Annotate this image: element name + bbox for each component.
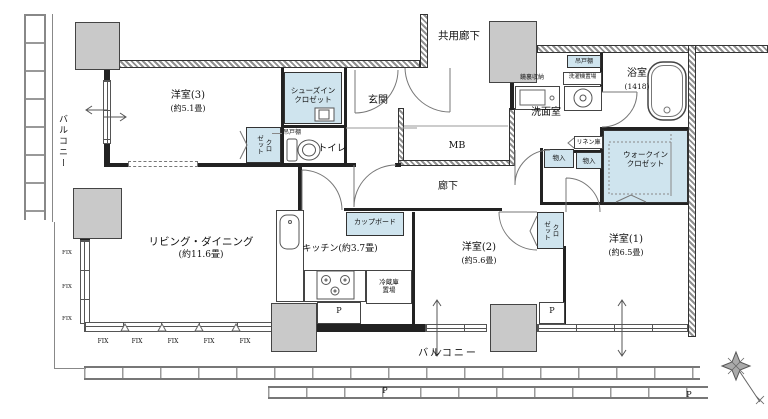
wall xyxy=(298,163,302,212)
wall xyxy=(510,83,514,110)
window-western3 xyxy=(103,80,111,144)
bath-size: (1418) xyxy=(620,82,654,92)
living-size: (約11.6畳) xyxy=(166,250,236,261)
corridor-label: 廊下 xyxy=(426,181,470,194)
left-balcony-label: バルコニー xyxy=(53,95,67,187)
western3-size: (約5.1畳) xyxy=(158,104,218,114)
closet-a-label: ゼット クロ xyxy=(246,128,281,162)
living-label: リビング・ダイニング xyxy=(142,236,260,249)
window-fix-bottom xyxy=(84,322,274,332)
mb-wall-right xyxy=(509,108,515,166)
wall xyxy=(344,208,502,211)
bottom-balcony-label: バルコニー xyxy=(408,348,488,361)
hanging-cabinet-toilet-label: 吊戸棚 xyxy=(283,129,313,137)
p-label: P xyxy=(372,386,398,396)
mb-label: MB xyxy=(440,140,474,152)
wall-right xyxy=(688,45,696,337)
mb-wall-left xyxy=(398,108,404,166)
wall xyxy=(317,324,415,332)
fix-label: FIX xyxy=(62,316,72,342)
entrance-label: 玄関 xyxy=(356,95,400,108)
closet-b-label: ゼット クロ xyxy=(537,213,564,248)
wic-label: ウォークイン クロゼット xyxy=(605,150,686,174)
fix-label: FIX xyxy=(62,250,72,276)
closet-b-col-left: ゼット xyxy=(543,221,550,241)
linen-label: リネン庫 xyxy=(574,139,603,148)
p-label: P xyxy=(676,390,702,400)
wall xyxy=(284,125,344,128)
p-label: P xyxy=(539,306,565,316)
pillar xyxy=(75,22,120,70)
shoes-closet-label: シューズイン クロゼット xyxy=(285,86,341,110)
wall xyxy=(395,163,401,167)
bath-label: 浴室 xyxy=(618,68,656,81)
mb-wall-bottom xyxy=(398,160,515,166)
closet-a-col-left: ゼット xyxy=(256,135,263,155)
pillar xyxy=(271,303,317,352)
kitchen-counter-bottom xyxy=(304,270,366,302)
floor-plan: バルコニー xyxy=(0,0,768,419)
wall xyxy=(415,324,425,332)
window-western2 xyxy=(425,324,487,332)
washer-space-label: 洗濯機置場 xyxy=(563,74,602,83)
left-balcony-railing xyxy=(24,14,46,220)
wall-top-right xyxy=(537,45,768,53)
compass-icon xyxy=(722,352,764,404)
hanging-cabinet-laundry-label: 吊戸棚 xyxy=(567,58,601,67)
western3-label: 洋室(3) xyxy=(156,90,220,103)
closet-a-col-right: クロ xyxy=(265,139,272,152)
window-western3-south xyxy=(128,161,198,167)
window-western1 xyxy=(537,324,688,332)
wall xyxy=(412,212,415,324)
fix-label: FIX xyxy=(62,284,72,310)
bottom-railing-outer xyxy=(268,386,708,399)
fridge-space-label: 冷蔵庫 置場 xyxy=(366,278,412,296)
fix-label: FIX xyxy=(88,338,118,347)
kitchen-counter xyxy=(276,210,304,302)
western2-size: (約5.6畳) xyxy=(451,256,507,266)
wall-top xyxy=(104,60,420,68)
western1-label: 洋室(1) xyxy=(598,234,654,247)
fix-label: FIX xyxy=(122,338,152,347)
bottom-railing xyxy=(84,366,700,380)
window-fix-left xyxy=(80,240,90,324)
kitchen-label: キッチン(約3.7畳) xyxy=(298,244,382,256)
balcony-boundary-v xyxy=(54,222,55,368)
p-label: P xyxy=(326,306,352,316)
storage-2-label: 物入 xyxy=(576,157,602,166)
fix-label: FIX xyxy=(230,338,260,347)
western2-label: 洋室(2) xyxy=(451,242,507,255)
wall xyxy=(540,148,543,205)
fix-label: FIX xyxy=(158,338,188,347)
shared-corridor-label: 共用廊下 xyxy=(426,30,492,43)
closet-b-col-right: クロ xyxy=(552,224,559,237)
washroom-label: 洗面室 xyxy=(520,107,572,120)
fix-label: FIX xyxy=(194,338,224,347)
toilet-label: トイレ xyxy=(314,143,350,155)
mirror-storage-label: 鏡裏収納 xyxy=(512,74,552,83)
cupboard-label: カップボード xyxy=(347,218,403,228)
pillar xyxy=(490,304,537,352)
balcony-boundary-h xyxy=(54,368,86,369)
pillar xyxy=(73,188,122,239)
western1-size: (約6.5畳) xyxy=(598,248,654,258)
storage-1-label: 物入 xyxy=(544,154,574,163)
